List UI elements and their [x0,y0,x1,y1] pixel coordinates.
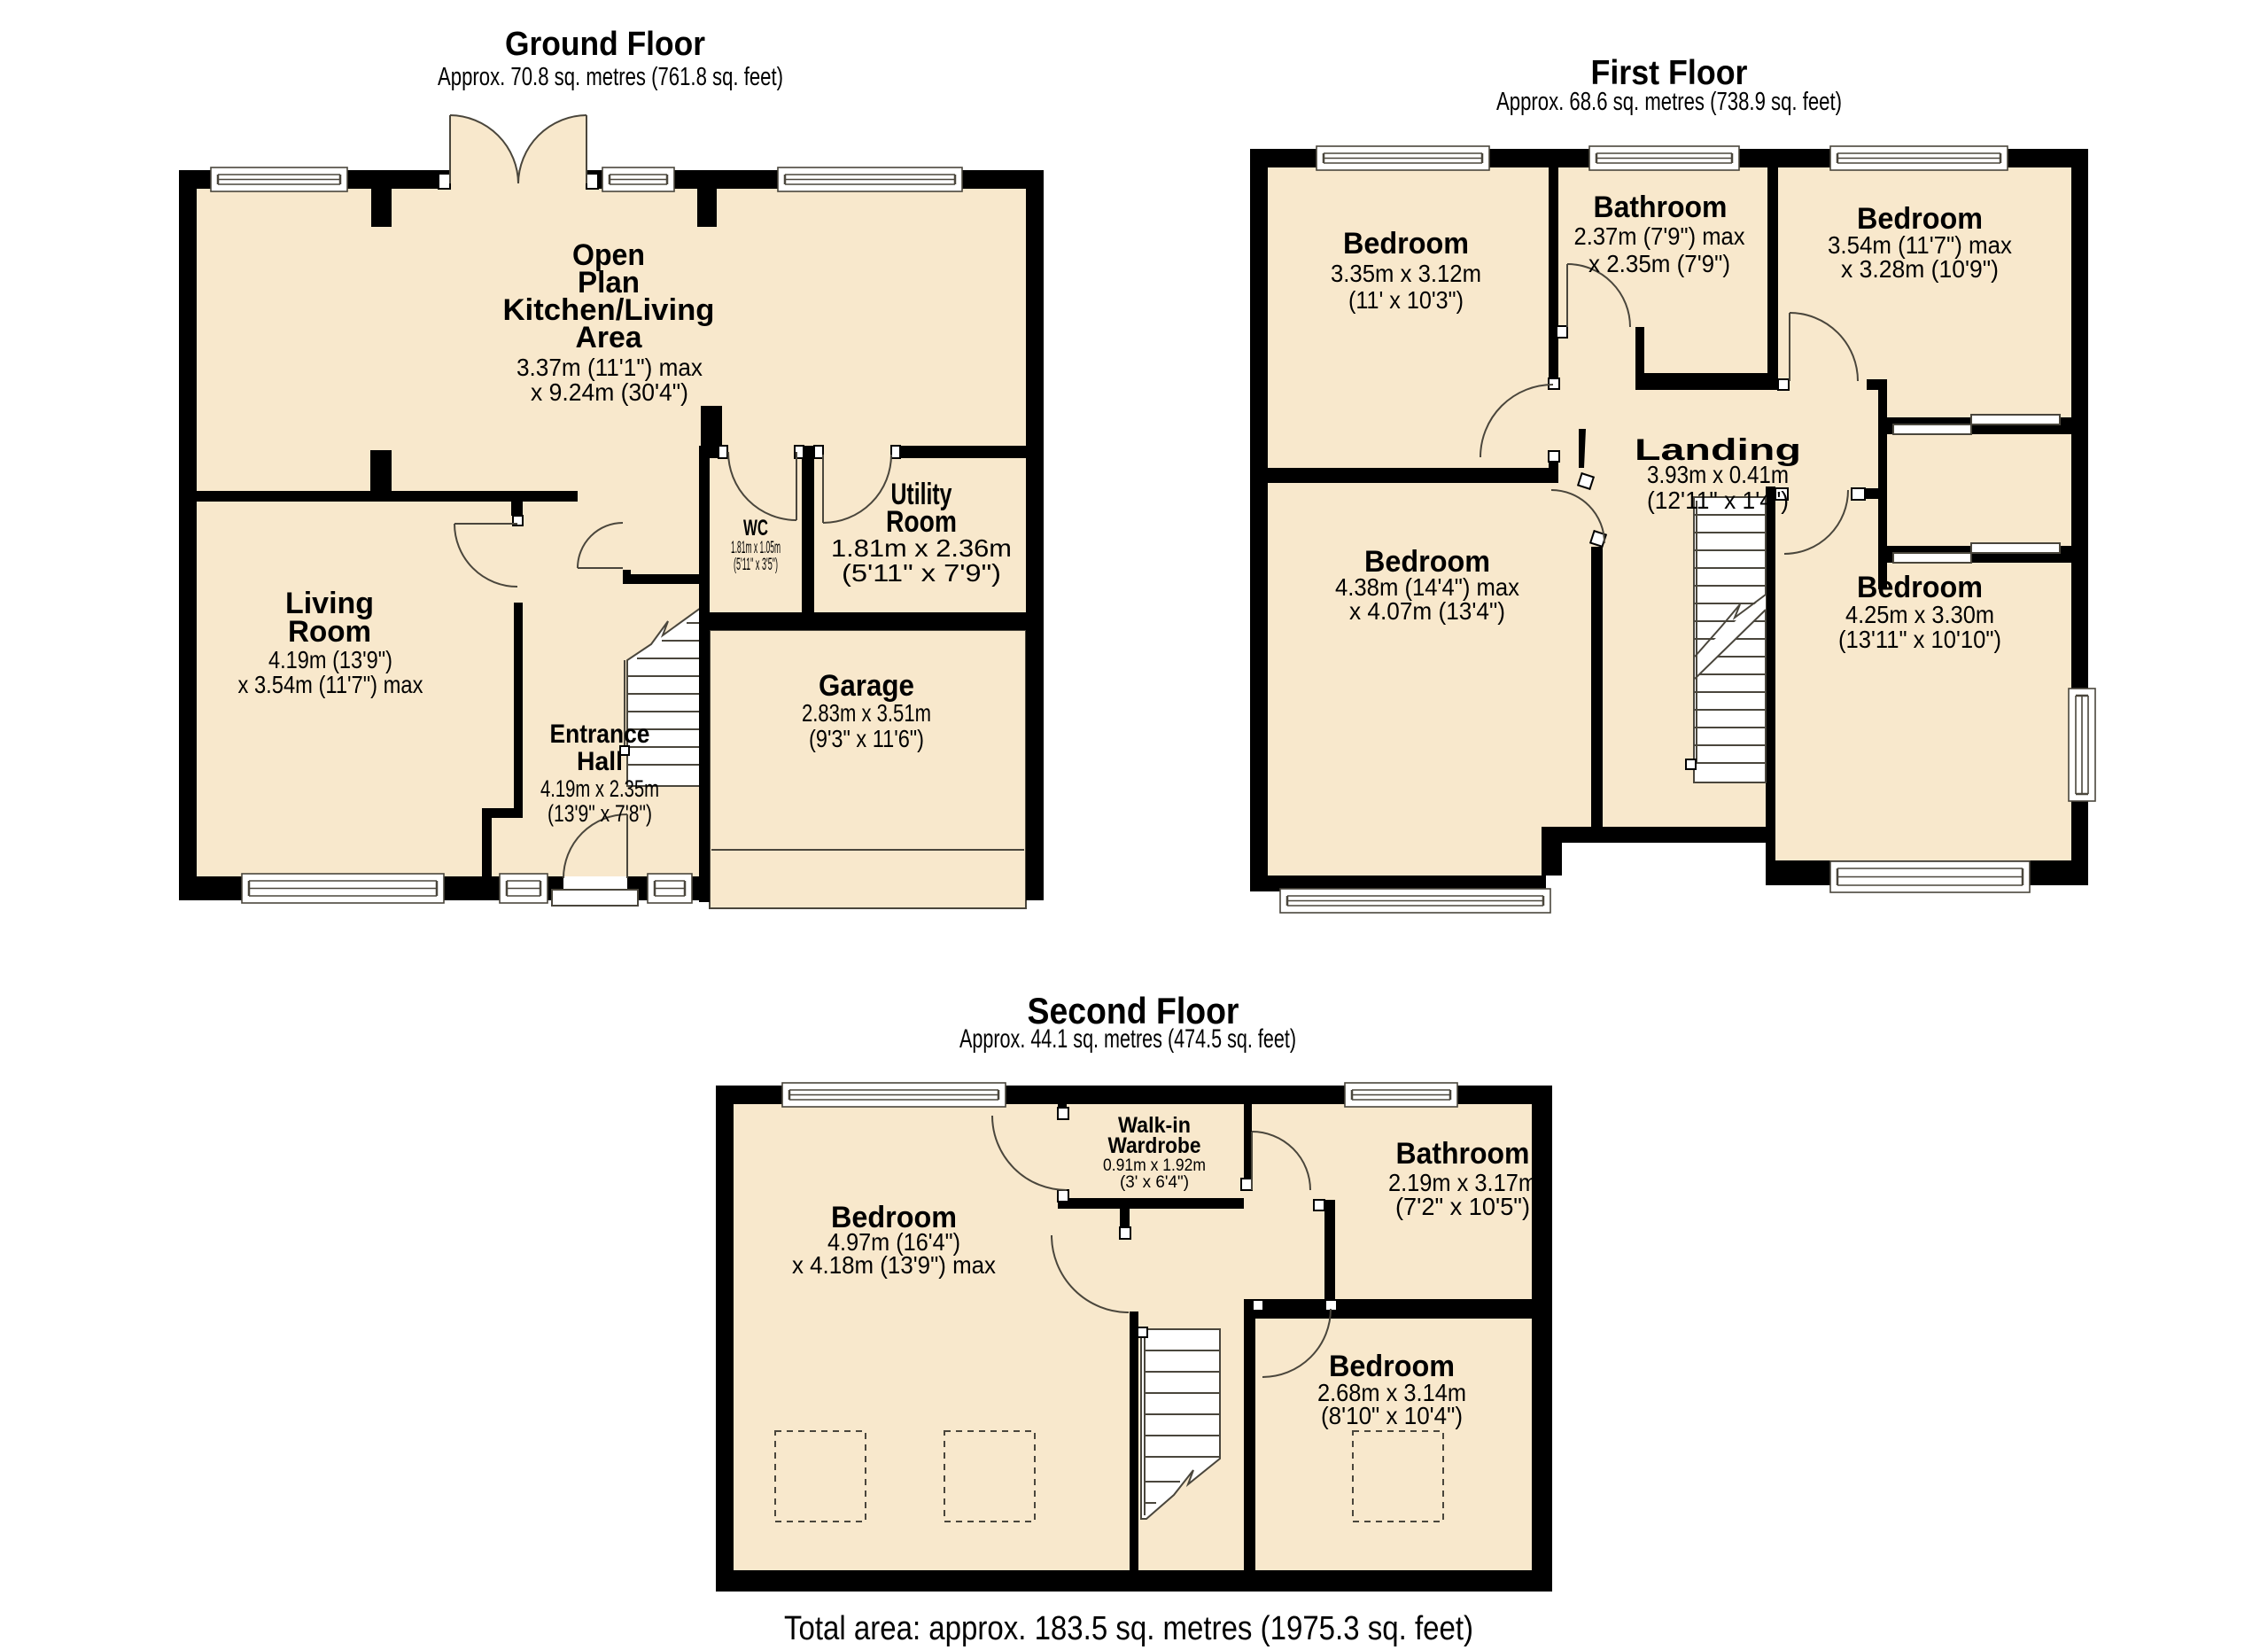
svg-text:(3' x 6'4"): (3' x 6'4") [1120,1173,1189,1192]
svg-text:1.81m x 2.36m: 1.81m x 2.36m [831,534,1012,562]
svg-text:Room: Room [288,615,371,649]
svg-text:Bathroom: Bathroom [1396,1137,1530,1171]
svg-text:Garage: Garage [819,669,914,703]
svg-text:Approx. 70.8 sq. metres (761.8: Approx. 70.8 sq. metres (761.8 sq. feet) [438,63,783,91]
svg-text:(8'10" x 10'4"): (8'10" x 10'4") [1321,1402,1463,1429]
svg-text:x 4.07m (13'4"): x 4.07m (13'4") [1349,597,1505,625]
svg-text:(12'11" x 1'4"): (12'11" x 1'4") [1647,486,1789,514]
svg-text:x 9.24m (30'4"): x 9.24m (30'4") [531,378,688,406]
svg-text:x 2.35m (7'9"): x 2.35m (7'9") [1588,250,1730,277]
svg-text:1.81m x 1.05m: 1.81m x 1.05m [731,539,781,557]
svg-text:(5'11" x 7'9"): (5'11" x 7'9") [842,559,1001,587]
svg-text:First Floor: First Floor [1591,54,1748,92]
svg-text:Total area: approx. 183.5 sq.: Total area: approx. 183.5 sq. metres (19… [784,1610,1473,1647]
svg-text:Area: Area [576,321,643,354]
svg-text:Hall: Hall [577,747,623,776]
svg-text:x 4.18m (13'9") max: x 4.18m (13'9") max [792,1251,996,1279]
svg-text:(13'9" x 7'8"): (13'9" x 7'8") [548,800,652,827]
svg-text:(5'11" x 3'5"): (5'11" x 3'5") [734,556,778,574]
svg-text:(9'3" x 11'6"): (9'3" x 11'6") [809,725,924,752]
svg-text:3.37m (11'1") max: 3.37m (11'1") max [517,354,703,381]
svg-text:(7'2" x 10'5"): (7'2" x 10'5") [1395,1193,1530,1220]
svg-text:4.19m x 2.35m: 4.19m x 2.35m [540,775,659,802]
svg-text:Wardrobe: Wardrobe [1108,1133,1201,1158]
svg-text:Ground Floor: Ground Floor [505,26,705,63]
svg-text:(11' x 10'3"): (11' x 10'3") [1348,286,1464,314]
svg-text:x 3.54m (11'7") max: x 3.54m (11'7") max [238,671,423,698]
svg-text:Bedroom: Bedroom [1857,571,1983,604]
svg-text:Bathroom: Bathroom [1594,191,1728,224]
svg-text:Approx. 68.6 sq. metres (738.9: Approx. 68.6 sq. metres (738.9 sq. feet) [1496,88,1842,116]
svg-text:2.83m x 3.51m: 2.83m x 3.51m [802,699,931,727]
svg-text:4.25m x 3.30m: 4.25m x 3.30m [1845,601,1994,628]
svg-text:x 3.28m (10'9"): x 3.28m (10'9") [1841,255,1999,283]
svg-text:3.93m x 0.41m: 3.93m x 0.41m [1647,461,1789,488]
svg-text:Entrance: Entrance [550,720,650,749]
svg-text:3.35m x 3.12m: 3.35m x 3.12m [1331,260,1481,287]
svg-text:Bedroom: Bedroom [1343,227,1469,261]
svg-text:4.19m (13'9"): 4.19m (13'9") [268,646,392,673]
svg-text:Approx. 44.1 sq. metres (474.5: Approx. 44.1 sq. metres (474.5 sq. feet) [959,1024,1296,1054]
svg-text:0.91m x 1.92m: 0.91m x 1.92m [1103,1156,1206,1175]
svg-text:2.37m (7'9") max: 2.37m (7'9") max [1574,222,1745,250]
svg-text:(13'11" x 10'10"): (13'11" x 10'10") [1838,626,2001,653]
svg-text:WC: WC [743,516,768,541]
